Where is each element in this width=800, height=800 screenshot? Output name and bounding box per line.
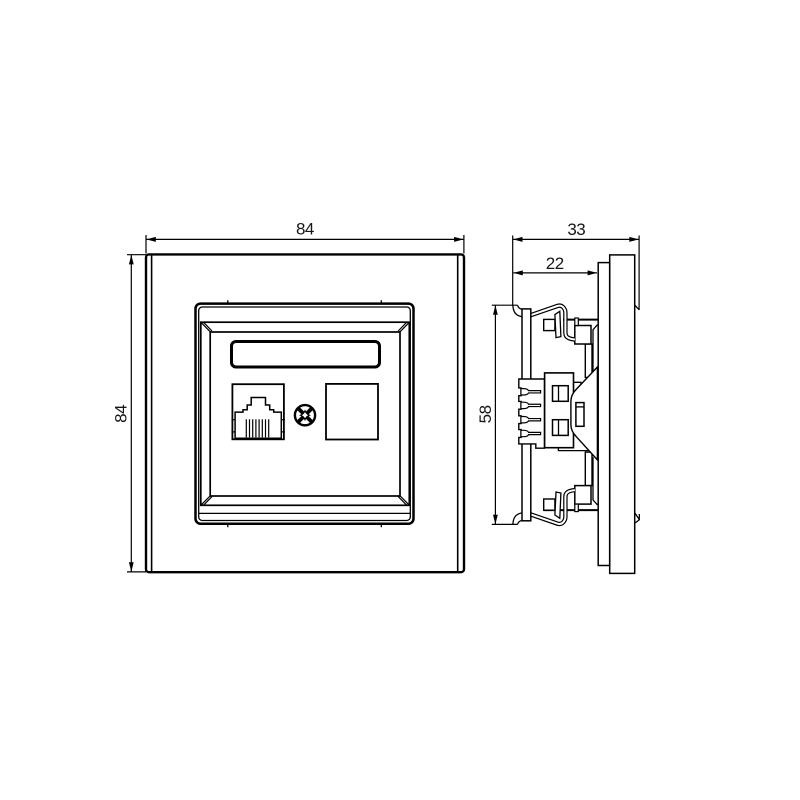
svg-text:22: 22: [546, 254, 564, 273]
svg-text:33: 33: [567, 220, 585, 239]
svg-text:58: 58: [476, 405, 495, 423]
svg-text:84: 84: [111, 405, 130, 423]
svg-text:84: 84: [296, 220, 314, 239]
